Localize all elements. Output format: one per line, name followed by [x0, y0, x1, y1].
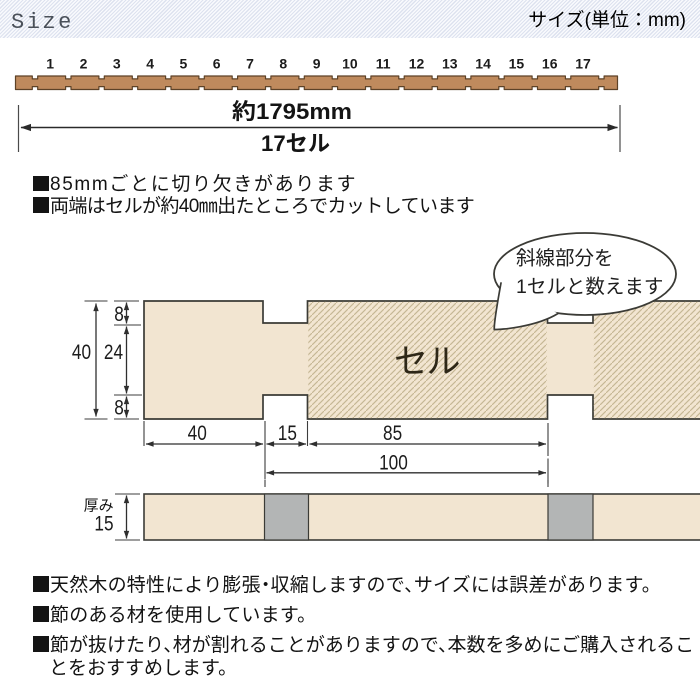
svg-text:厚み: 厚み	[84, 498, 114, 515]
svg-text:8: 8	[279, 56, 287, 72]
svg-text:16: 16	[542, 56, 558, 72]
svg-text:12: 12	[409, 56, 425, 72]
svg-text:3: 3	[113, 56, 121, 72]
svg-text:5: 5	[180, 56, 188, 72]
svg-text:セル: セル	[394, 343, 459, 381]
svg-text:13: 13	[442, 56, 458, 72]
svg-text:100: 100	[379, 452, 408, 475]
svg-text:17セル: 17セル	[261, 131, 330, 156]
svg-text:15: 15	[509, 56, 525, 72]
svg-text:2: 2	[80, 56, 88, 72]
svg-text:15: 15	[94, 513, 113, 536]
svg-text:15: 15	[278, 423, 297, 446]
svg-text:4: 4	[146, 56, 154, 72]
svg-text:1セルと数えます: 1セルと数えます	[516, 276, 663, 298]
svg-text:10: 10	[342, 56, 358, 72]
svg-text:9: 9	[313, 56, 321, 72]
svg-text:7: 7	[246, 56, 254, 72]
svg-text:40: 40	[72, 342, 91, 365]
svg-text:85: 85	[383, 423, 402, 446]
svg-text:14: 14	[475, 56, 491, 72]
svg-text:6: 6	[213, 56, 221, 72]
svg-text:11: 11	[376, 56, 391, 72]
svg-text:約1795mm: 約1795mm	[232, 100, 352, 124]
svg-text:8: 8	[114, 397, 124, 420]
svg-text:40: 40	[188, 423, 207, 446]
svg-text:斜線部分を: 斜線部分を	[516, 248, 614, 270]
svg-text:17: 17	[575, 56, 591, 72]
svg-text:8: 8	[114, 304, 124, 327]
svg-text:24: 24	[104, 342, 123, 365]
svg-text:1: 1	[46, 56, 54, 72]
